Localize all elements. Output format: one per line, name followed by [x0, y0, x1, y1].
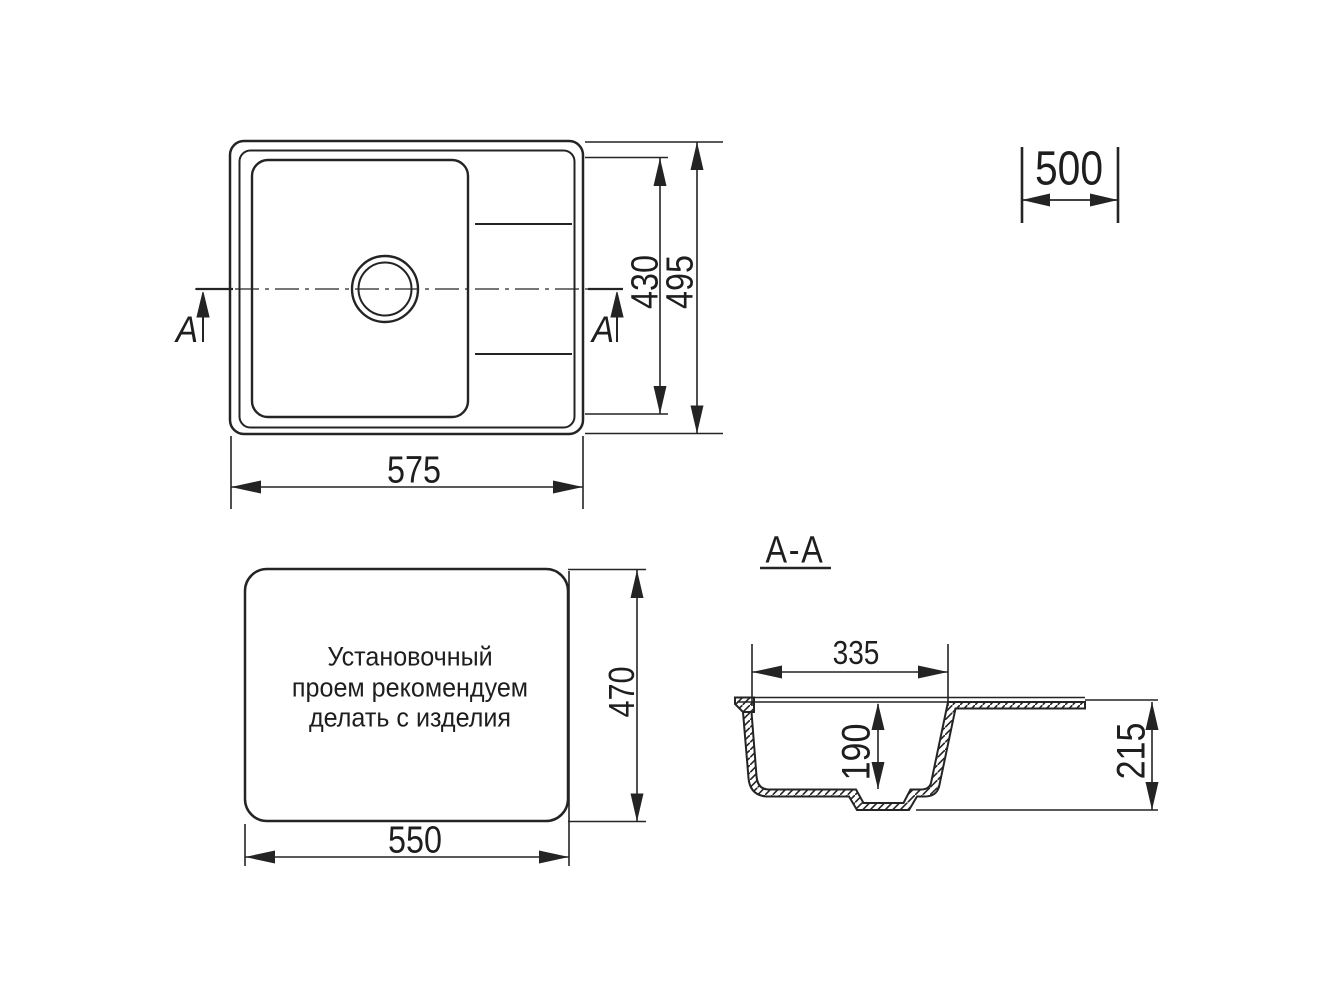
linework — [0, 0, 1330, 1000]
installation-note: Установочный проем рекомендуем делать с … — [292, 641, 528, 733]
cut-label-a-left: A — [176, 309, 198, 351]
technical-drawing-sheet: 575 430 495 500 A A 550 470 A-A 335 190 … — [0, 0, 1330, 1000]
cut-label-a-right: A — [592, 309, 614, 351]
dim-label-335: 335 — [833, 634, 880, 672]
dim-label-500: 500 — [1035, 142, 1103, 197]
installation-note-line3: делать с изделия — [292, 702, 528, 733]
sink-outer-outline — [230, 141, 583, 434]
top-view — [195, 141, 625, 434]
dim-label-470: 470 — [601, 666, 643, 717]
dim-label-575: 575 — [387, 450, 441, 493]
dim-label-190: 190 — [835, 724, 880, 781]
section-rim-left — [735, 698, 754, 713]
installation-note-line1: Установочный — [292, 641, 528, 672]
dim-label-550: 550 — [388, 820, 442, 863]
section-view — [735, 568, 1085, 810]
section-body — [743, 702, 1085, 810]
dim-label-215: 215 — [1110, 723, 1155, 780]
installation-note-line2: проем рекомендуем — [292, 672, 528, 703]
cut-arrow-left-head — [197, 292, 209, 317]
section-title: A-A — [766, 530, 825, 573]
dim-label-495: 495 — [660, 255, 703, 309]
